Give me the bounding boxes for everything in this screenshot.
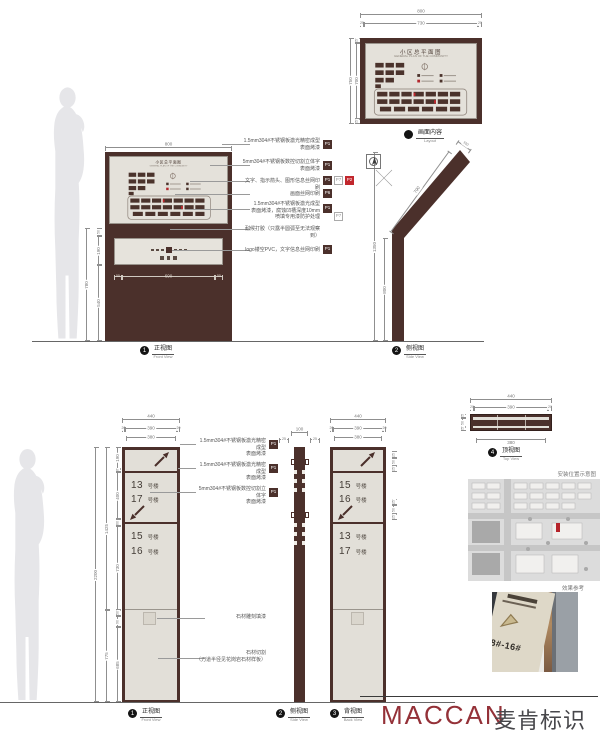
material-badge: P1 <box>269 464 278 473</box>
photo-arrow-icon <box>499 611 522 633</box>
logo-plaque-name-row <box>115 256 222 260</box>
view-number: 2 <box>392 346 401 355</box>
building-number: 17 号楼 <box>339 542 367 558</box>
photo-sign-text: 8#-16# <box>492 637 522 653</box>
dim-detail-height: 750 <box>350 38 351 124</box>
brand-name-zh: 麦肯标识 <box>494 703 586 735</box>
view-label-side-1: 2 侧视图Side View <box>392 346 426 359</box>
dim-v1-seg-top: 50 <box>98 228 99 236</box>
view-label-front-1: 1 正视图Front View <box>140 346 174 359</box>
annotation: 耐候打胶（只露半圆弧至无法观察到） <box>242 226 320 239</box>
annotation: 5mm304#不锈钢板数控切割立体字 表面烤漆 <box>196 486 266 506</box>
material-badge: P1 <box>323 176 332 185</box>
etched-logo-area <box>143 612 156 625</box>
view-label-back: 3 背视图Back View <box>330 709 364 722</box>
dim-v1-base-c: 690 <box>122 276 215 277</box>
map-sign-title-zh: 小区总平面图 <box>132 159 205 165</box>
direction-arrow-icon <box>358 452 378 468</box>
annotation: 1.5mm304#不锈钢板激光精密成型 表面烤漆 <box>196 438 266 458</box>
community-map-graphic-large <box>369 61 473 117</box>
tower-top-view <box>470 414 552 431</box>
dim-tower-lower: 775 <box>106 610 107 702</box>
view-label-top: 4 顶视图Top View <box>488 448 522 461</box>
map-sign-title-en: GENERAL PLAN OF THE COMMUNITY <box>144 165 193 168</box>
material-badge: P1 <box>323 245 332 254</box>
map-sign-panel-face: 小区总平面图 GENERAL PLAN OF THE COMMUNITY <box>109 156 228 224</box>
tower-side-view <box>294 447 305 702</box>
dim-tf-width: 440 <box>122 419 180 420</box>
dim-v1-seg-base: 540 <box>98 265 99 341</box>
view-label-layout: 画面内容Layout <box>404 130 444 143</box>
brand-logo: MACCAN <box>381 700 506 731</box>
view-label-side-2: 2 侧视图Side View <box>276 709 310 722</box>
etched-logo-area <box>351 612 364 625</box>
dim-tt-width: 440 <box>470 399 552 400</box>
footer-rule <box>360 696 598 697</box>
dim-detail-width: 800 <box>360 14 482 15</box>
sign-location-marker <box>556 523 560 532</box>
dim-ts-width: 100 <box>291 432 308 433</box>
dim-v1-seg-plaque: 190 <box>98 236 99 265</box>
building-number: 16 号楼 <box>339 490 367 506</box>
direction-arrow-icon <box>127 504 147 520</box>
dim-v1-base-r: 55 <box>215 276 223 277</box>
person-silhouette-top <box>36 86 97 341</box>
photo-reference: 8#-16# <box>492 592 578 672</box>
annotation: 文字、指示箭头、图形信息丝网印刷 <box>242 178 320 191</box>
annotation: logo镂空PVC，文字信息丝网印刷 <box>242 247 320 254</box>
view-label-front-2: 1 正视图Front View <box>128 709 162 722</box>
face-detail-frame: 小区总平面图 GENERAL PLAN OF THE COMMUNITY <box>360 38 482 124</box>
view-number: 1 <box>140 346 149 355</box>
dim-v1-body: 780 <box>86 228 87 341</box>
dim-tower-upper: 1425 <box>106 447 107 610</box>
face-detail-title-en: GENERAL PLAN OF THE COMMUNITY <box>394 55 449 58</box>
annotation: 1.5mm304#不锈钢板激光成型 表面烤漆，腐蚀凹槽深度10mm 喷填专用漆防… <box>242 201 320 221</box>
dim-tower-total: 2200 <box>95 447 96 702</box>
material-badge: P1 <box>323 204 332 213</box>
dim-v2-post: 800 <box>384 238 385 341</box>
logo-plaque <box>114 238 223 265</box>
annotation: 石材切割 （刀道半径见花岗岩石材样板） <box>196 650 266 663</box>
dim-v1-width: 800 <box>105 147 232 148</box>
annotation: 5mm304#不锈钢板数控切割立体字 表面烤漆 <box>242 159 320 172</box>
photo-reference-label: 效果参考 <box>468 584 584 592</box>
center-cross-mark <box>374 168 394 188</box>
annotation: 石材雕刻填漆 <box>205 614 266 621</box>
material-badge: P2 <box>345 176 354 185</box>
map-sign-panel-frame: 小区总平面图 GENERAL PLAN OF THE COMMUNITY <box>105 152 232 228</box>
material-badge: P1 <box>323 140 332 149</box>
direction-arrow-icon <box>152 452 172 468</box>
annotation: 1.5mm304#不锈钢板激光精密成型 表面烤漆 <box>242 138 320 151</box>
person-silhouette-bottom <box>0 448 57 702</box>
direction-arrow-icon <box>335 504 355 520</box>
site-plan-label: 安装位置示意图 <box>468 470 596 478</box>
view-number <box>404 130 413 139</box>
material-badge: P1 <box>269 440 278 449</box>
face-detail-panel: 小区总平面图 GENERAL PLAN OF THE COMMUNITY <box>365 43 477 119</box>
annotation: 1.5mm304#不锈钢板激光精密成型 表面烤漆 <box>196 462 266 482</box>
dim-v1-base-l: 55 <box>114 276 122 277</box>
building-number: 16 号楼 <box>131 542 159 558</box>
material-badge: P7 <box>334 212 343 221</box>
material-badge: P7 <box>334 176 343 185</box>
annotation: 画面丝网印刷 <box>242 191 320 198</box>
signage-design-sheet: 小区总平面图 GENERAL PLAN OF THE COMMUNITY 800… <box>0 0 600 748</box>
dim-tb-width: 440 <box>330 419 386 420</box>
site-plan-map <box>468 479 600 581</box>
material-badge: P1 <box>269 488 278 497</box>
north-compass-icon <box>366 154 381 169</box>
community-map-graphic <box>118 171 221 221</box>
material-badge: P6 <box>323 189 332 198</box>
material-badge: P1 <box>323 161 332 170</box>
